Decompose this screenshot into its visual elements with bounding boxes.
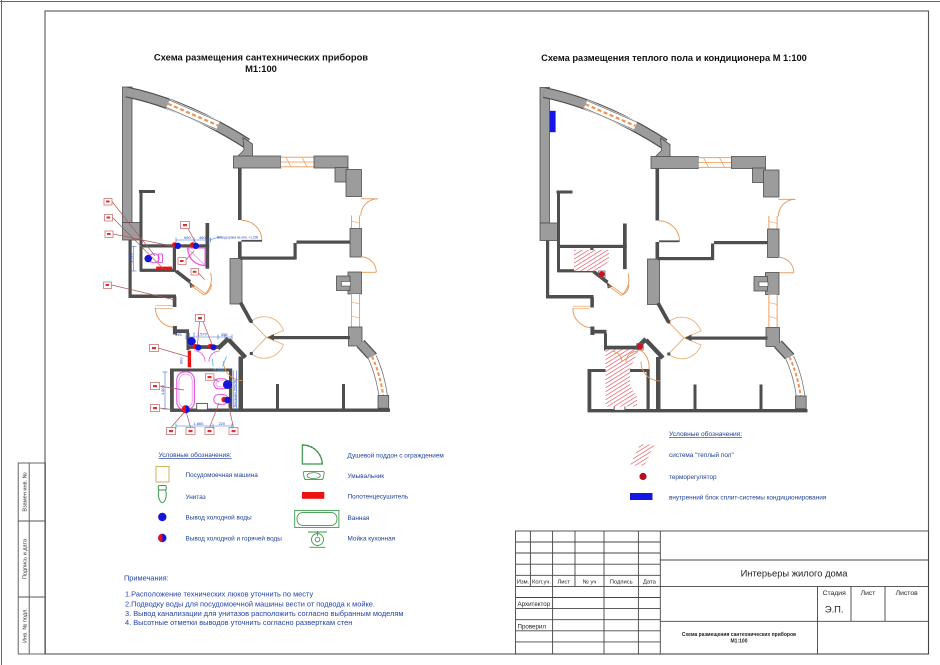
svg-text:Схема размещения сантехнически: Схема размещения сантехнических приборов — [154, 52, 368, 63]
svg-text:Вывод крана на отм. +1,200: Вывод крана на отм. +1,200 — [217, 236, 258, 240]
svg-text:Интерьеры жилого дома: Интерьеры жилого дома — [741, 568, 849, 579]
svg-text:395: 395 — [175, 332, 182, 337]
svg-text:220: 220 — [219, 421, 226, 426]
svg-text:Ванная: Ванная — [348, 515, 370, 522]
svg-text:800: 800 — [179, 357, 184, 364]
svg-text:Полотенцесушитель: Полотенцесушитель — [348, 494, 409, 501]
svg-text:Схема размещения сантехнически: Схема размещения сантехнических приборов — [682, 631, 796, 638]
svg-text:Инв. № подл.: Инв. № подл. — [23, 608, 29, 643]
svg-text:Проверил: Проверил — [518, 623, 547, 630]
svg-text:М1:100: М1:100 — [245, 63, 277, 74]
svg-text:R 202: R 202 — [214, 367, 224, 372]
svg-text:Изм.: Изм. — [517, 580, 530, 586]
svg-text:Схема размещения теплого пола: Схема размещения теплого пола и кондицио… — [541, 53, 807, 63]
svg-text:Унитаз: Унитаз — [186, 494, 206, 501]
svg-text:900: 900 — [184, 235, 191, 240]
svg-text:Подпись и дата: Подпись и дата — [23, 538, 29, 579]
svg-text:система "теплый пол": система "теплый пол" — [669, 451, 734, 459]
svg-text:Примечания:: Примечания: — [124, 574, 169, 583]
svg-text:Душевой поддон с ограждением: Душевой поддон с ограждением — [348, 452, 444, 460]
svg-text:Кол.уч.: Кол.уч. — [532, 580, 551, 586]
svg-text:Архитектор: Архитектор — [518, 601, 551, 608]
svg-text:Лист: Лист — [861, 590, 876, 597]
svg-text:Вентканал 150х200: Вентканал 150х200 — [233, 380, 237, 407]
svg-text:460: 460 — [199, 235, 206, 240]
svg-text:Дата: Дата — [643, 580, 657, 586]
svg-text:терморегулятор: терморегулятор — [669, 474, 717, 481]
svg-text:Подпись: Подпись — [610, 580, 633, 586]
svg-text:355: 355 — [221, 332, 228, 337]
svg-text:Листов: Листов — [896, 590, 918, 597]
svg-text:Условные обозначения:: Условные обозначения: — [669, 430, 742, 438]
svg-text:Стадия: Стадия — [823, 590, 846, 597]
svg-text:Посудомоечная машина: Посудомоечная машина — [186, 472, 259, 479]
svg-text:1.515: 1.515 — [128, 253, 133, 263]
svg-text:М1:100: М1:100 — [731, 639, 748, 645]
svg-text:1.660: 1.660 — [194, 421, 205, 426]
svg-text:2.Подводку воды для посудомоеч: 2.Подводку воды для посудомоечной машины… — [125, 600, 375, 609]
svg-text:1.570: 1.570 — [197, 332, 208, 337]
svg-text:Вывод холодной воды: Вывод холодной воды — [186, 514, 252, 522]
svg-text:Лист: Лист — [557, 580, 570, 586]
svg-text:№ уч: № уч — [583, 580, 597, 586]
svg-text:Э.П.: Э.П. — [825, 604, 844, 615]
svg-text:Условные обозначения:: Условные обозначения: — [159, 451, 232, 459]
svg-text:Умывальник: Умывальник — [348, 473, 385, 480]
svg-text:Вывод холодной и горячей воды: Вывод холодной и горячей воды — [186, 535, 283, 543]
svg-text:1.800: 1.800 — [160, 384, 165, 395]
svg-text:внутренний блок сплит-системы: внутренний блок сплит-системы кондициони… — [669, 494, 827, 502]
svg-text:1.Расположение технических люк: 1.Расположение технических люков уточнит… — [125, 590, 313, 599]
svg-text:Взамен инв. №: Взамен инв. № — [23, 472, 29, 511]
svg-text:4. Высотные отметки выводов ут: 4. Высотные отметки выводов уточнить сог… — [125, 618, 352, 627]
svg-text:Мойка кухонная: Мойка кухонная — [348, 535, 396, 543]
svg-text:3. Вывод канализации для унита: 3. Вывод канализации для унитазов распол… — [125, 609, 403, 618]
